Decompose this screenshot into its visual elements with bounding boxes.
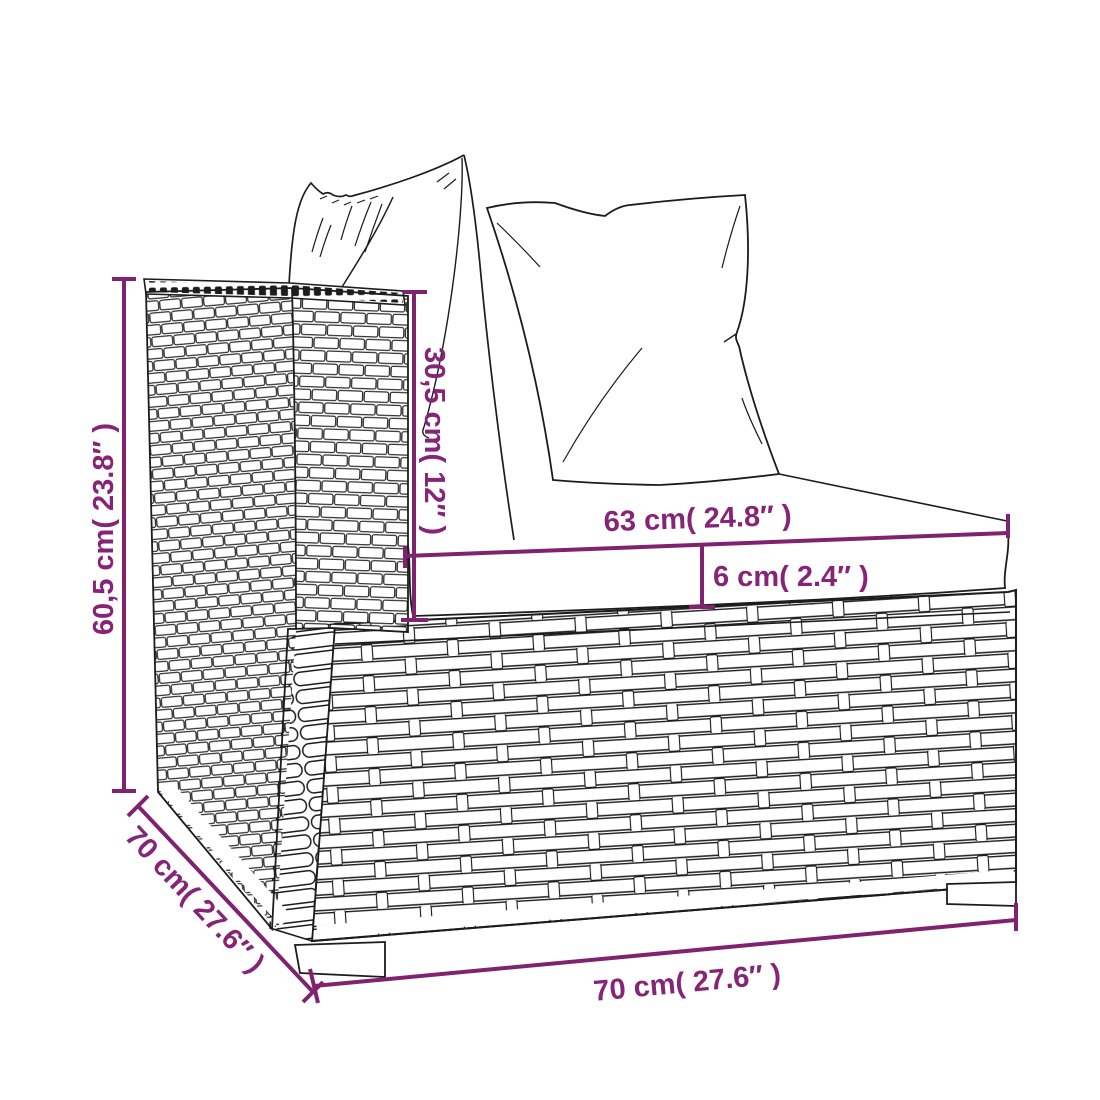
svg-text:60,5 cm( 23.8″ ): 60,5 cm( 23.8″ ) (88, 423, 120, 635)
svg-text:63 cm( 24.8″ ): 63 cm( 24.8″ ) (603, 500, 792, 539)
svg-text:30,5 cm( 12″ ): 30,5 cm( 12″ ) (418, 347, 450, 535)
svg-text:6 cm( 2.4″ ): 6 cm( 2.4″ ) (713, 561, 869, 593)
